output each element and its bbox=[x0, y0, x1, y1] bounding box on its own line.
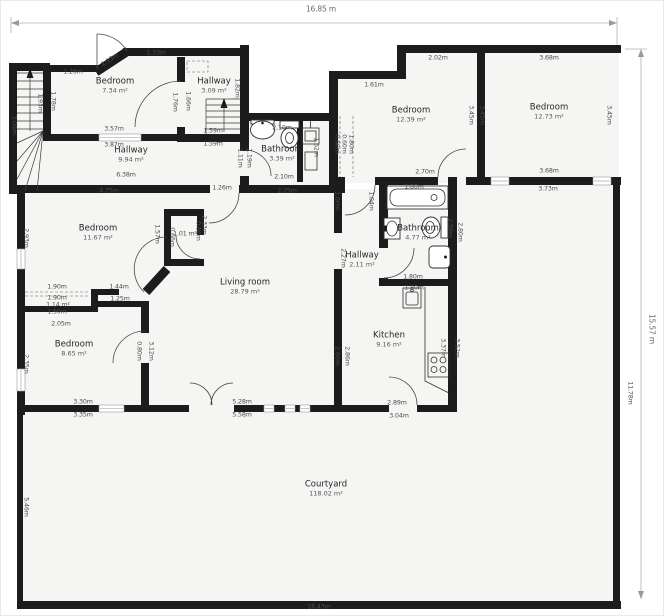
toilet-icon bbox=[280, 121, 299, 148]
sink-icon bbox=[384, 218, 400, 239]
bathtub-icon bbox=[387, 186, 448, 209]
floor-areas bbox=[9, 49, 619, 605]
floorplan-canvas bbox=[1, 1, 664, 616]
floorplan-page: Bedroom7.34 m²Hallway3.09 m²Hallway9.94 … bbox=[0, 0, 664, 616]
shower-icon bbox=[429, 246, 450, 268]
toilet-icon bbox=[422, 217, 448, 238]
sink-icon bbox=[251, 120, 275, 139]
